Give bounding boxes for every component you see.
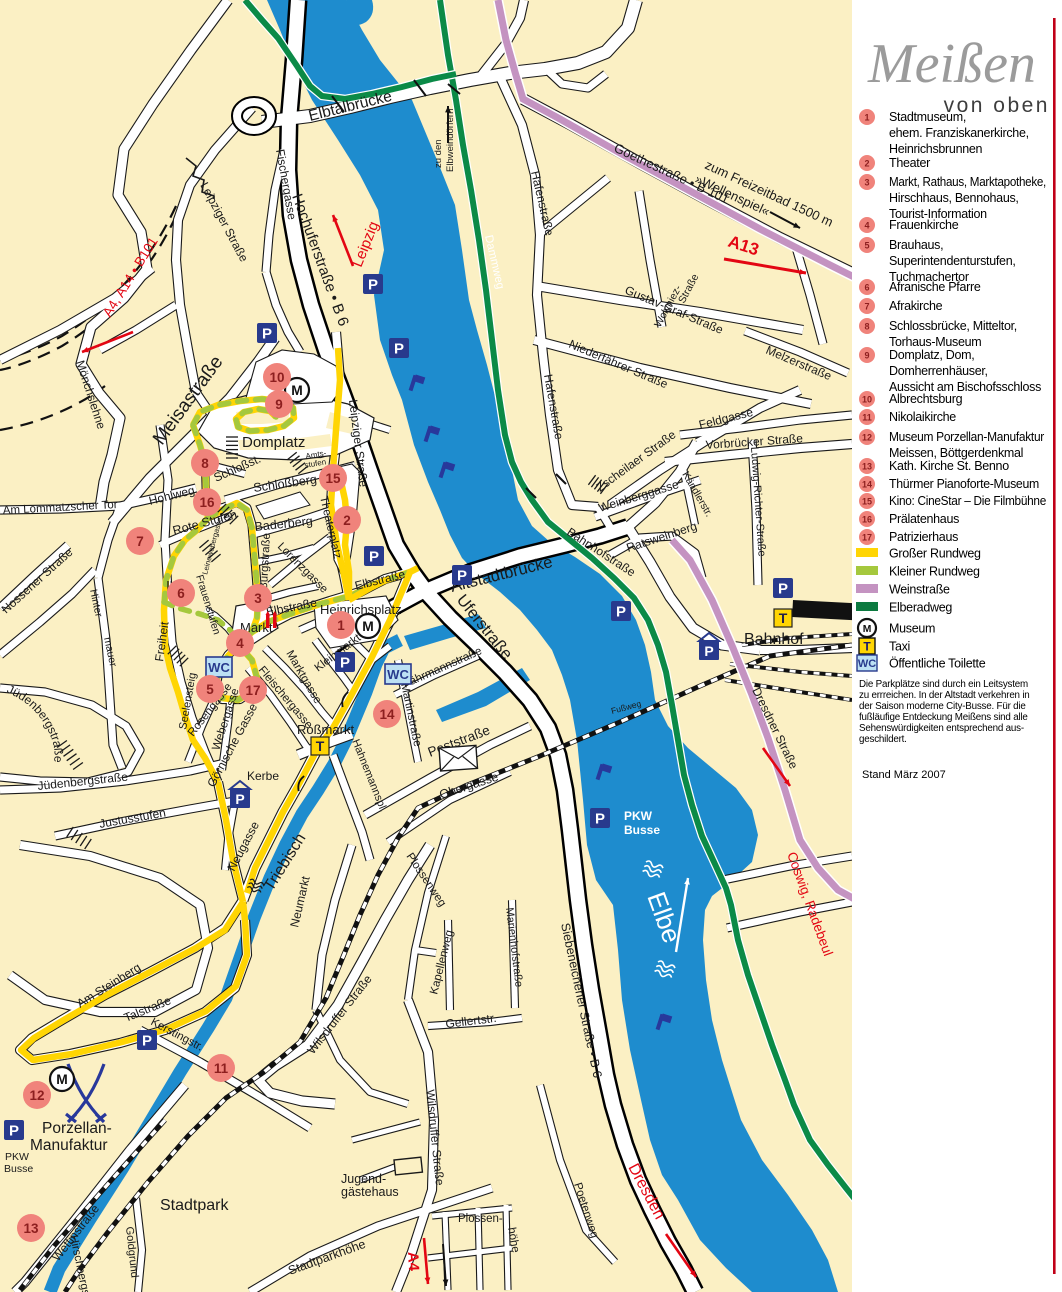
svg-text:P: P xyxy=(340,655,350,672)
svg-text:der Saison moderne City-Busse.: der Saison moderne City-Busse. Für die xyxy=(859,701,1026,712)
svg-text:5: 5 xyxy=(206,682,214,697)
svg-text:fußläufige Entdeckung Meißens: fußläufige Entdeckung Meißens sind alle xyxy=(859,712,1028,723)
svg-text:M: M xyxy=(291,383,303,398)
svg-text:8: 8 xyxy=(864,321,869,331)
svg-text:8: 8 xyxy=(201,456,209,471)
svg-text:11: 11 xyxy=(214,1061,229,1076)
svg-text:P: P xyxy=(616,604,626,621)
svg-text:Frauenkirche: Frauenkirche xyxy=(889,218,959,232)
svg-text:Roßmarkt: Roßmarkt xyxy=(297,722,354,737)
svg-text:Brauhaus,: Brauhaus, xyxy=(889,238,943,252)
svg-text:17: 17 xyxy=(862,532,872,542)
svg-text:Elberadweg: Elberadweg xyxy=(889,601,952,615)
svg-text:Thürmer Pianoforte-Museum: Thürmer Pianoforte-Museum xyxy=(889,477,1039,491)
svg-text:Großer Rundweg: Großer Rundweg xyxy=(889,547,981,561)
svg-text:Sehenswürdigkeiten entsprechen: Sehenswürdigkeiten entsprechend aus- xyxy=(859,723,1024,734)
svg-text:14: 14 xyxy=(379,707,395,722)
svg-text:6: 6 xyxy=(177,586,185,601)
svg-text:Kino: CineStar – Die Filmbühne: Kino: CineStar – Die Filmbühne xyxy=(889,494,1046,508)
svg-text:T: T xyxy=(316,738,325,754)
svg-text:P: P xyxy=(142,1033,152,1050)
svg-text:Taxi: Taxi xyxy=(889,640,910,654)
svg-text:7: 7 xyxy=(864,301,869,311)
svg-text:2: 2 xyxy=(864,158,869,168)
svg-text:1: 1 xyxy=(864,112,869,122)
svg-text:Hirschhaus, Bennohaus,: Hirschhaus, Bennohaus, xyxy=(889,191,1019,205)
svg-text:Stand März 2007: Stand März 2007 xyxy=(862,769,946,781)
svg-text:P: P xyxy=(368,277,378,294)
svg-text:6: 6 xyxy=(864,282,869,292)
svg-text:12: 12 xyxy=(29,1088,44,1103)
svg-text:zu den: zu den xyxy=(433,139,444,168)
svg-text:Domherrenhäuser,: Domherrenhäuser, xyxy=(889,364,988,378)
svg-text:Kerbe: Kerbe xyxy=(247,769,279,783)
svg-text:P: P xyxy=(369,549,379,566)
svg-text:16: 16 xyxy=(199,495,215,510)
svg-text:WC: WC xyxy=(208,660,230,675)
svg-text:Die Parkplätze sind durch ein: Die Parkplätze sind durch ein Leitsystem xyxy=(859,679,1028,690)
svg-text:15: 15 xyxy=(862,496,872,506)
svg-text:PKW: PKW xyxy=(624,809,653,823)
svg-text:Museum: Museum xyxy=(889,622,935,636)
svg-text:WC: WC xyxy=(858,658,876,670)
svg-text:Kath. Kirche St. Benno: Kath. Kirche St. Benno xyxy=(889,459,1009,473)
svg-text:2: 2 xyxy=(343,513,351,528)
svg-text:gästehaus: gästehaus xyxy=(341,1185,399,1199)
svg-text:P: P xyxy=(778,581,788,598)
svg-text:11: 11 xyxy=(862,412,872,422)
svg-text:Meißen: Meißen xyxy=(867,33,1036,95)
svg-text:10: 10 xyxy=(862,394,872,404)
svg-text:Bahnhof: Bahnhof xyxy=(744,631,804,648)
svg-text:7: 7 xyxy=(136,534,144,549)
svg-text:ehem. Franziskanerkirche,: ehem. Franziskanerkirche, xyxy=(889,126,1029,140)
svg-text:Afrakirche: Afrakirche xyxy=(889,299,943,313)
svg-text:Schlossbrücke, Mitteltor,: Schlossbrücke, Mitteltor, xyxy=(889,319,1017,333)
svg-text:T: T xyxy=(863,640,871,654)
svg-text:9: 9 xyxy=(275,397,283,412)
svg-text:Stadtmuseum,: Stadtmuseum, xyxy=(889,110,966,124)
svg-text:14: 14 xyxy=(862,479,872,489)
svg-text:15: 15 xyxy=(325,471,341,486)
svg-text:1: 1 xyxy=(337,618,345,633)
svg-text:PKW: PKW xyxy=(5,1151,29,1163)
svg-text:16: 16 xyxy=(862,514,872,524)
svg-text:Domplatz: Domplatz xyxy=(242,434,305,451)
svg-text:Elbweindörfern: Elbweindörfern xyxy=(445,109,456,172)
svg-text:12: 12 xyxy=(862,432,872,442)
svg-text:P: P xyxy=(235,791,244,807)
svg-text:Prälatenhaus: Prälatenhaus xyxy=(889,512,959,526)
svg-text:Jugend-: Jugend- xyxy=(341,1172,386,1186)
svg-text:Museum Porzellan-Manufaktur: Museum Porzellan-Manufaktur xyxy=(889,430,1044,444)
svg-text:Albrechtsburg: Albrechtsburg xyxy=(889,392,963,406)
svg-text:3: 3 xyxy=(254,591,262,606)
svg-text:Afranische Pfarre: Afranische Pfarre xyxy=(889,280,981,294)
svg-text:Plossen-: Plossen- xyxy=(458,1213,503,1225)
svg-text:13: 13 xyxy=(862,461,872,471)
svg-text:T: T xyxy=(779,610,788,626)
svg-text:Stadtpark: Stadtpark xyxy=(160,1197,229,1214)
svg-text:Nikolaikirche: Nikolaikirche xyxy=(889,410,956,424)
svg-text:13: 13 xyxy=(23,1221,39,1236)
svg-text:Patrizierhaus: Patrizierhaus xyxy=(889,530,958,544)
svg-text:Busse: Busse xyxy=(624,823,660,837)
svg-text:P: P xyxy=(394,341,404,358)
svg-text:geschildert.: geschildert. xyxy=(859,734,907,745)
svg-text:Theater: Theater xyxy=(889,156,930,170)
svg-text:M: M xyxy=(863,624,872,635)
svg-text:P: P xyxy=(704,643,713,659)
svg-text:Superintendenturstufen,: Superintendenturstufen, xyxy=(889,254,1016,268)
svg-text:Weinstraße: Weinstraße xyxy=(889,583,950,597)
svg-text:Kleiner Rundweg: Kleiner Rundweg xyxy=(889,565,980,579)
svg-text:Meissen, Böttgerdenkmal: Meissen, Böttgerdenkmal xyxy=(889,446,1023,460)
svg-text:Öffentliche Toilette: Öffentliche Toilette xyxy=(889,657,986,671)
svg-text:10: 10 xyxy=(269,370,284,385)
svg-text:M: M xyxy=(362,619,374,634)
svg-text:Porzellan-: Porzellan- xyxy=(42,1120,112,1137)
svg-text:zu errreichen. In der Altstadt: zu errreichen. In der Altstadt verkehren… xyxy=(859,690,1030,701)
svg-text:5: 5 xyxy=(864,240,869,250)
svg-text:P: P xyxy=(262,326,272,343)
svg-text:P: P xyxy=(595,811,605,828)
svg-text:P: P xyxy=(9,1123,19,1140)
svg-text:Busse: Busse xyxy=(4,1163,33,1175)
svg-text:Markt, Rathaus, Marktapotheke,: Markt, Rathaus, Marktapotheke, xyxy=(889,175,1046,189)
svg-text:3: 3 xyxy=(864,177,869,187)
svg-text:Heinrichsbrunnen: Heinrichsbrunnen xyxy=(889,142,983,156)
svg-text:P: P xyxy=(457,568,467,585)
svg-text:Domplatz, Dom,: Domplatz, Dom, xyxy=(889,348,974,362)
svg-text:Manufaktur: Manufaktur xyxy=(30,1137,108,1154)
svg-text:M: M xyxy=(56,1072,68,1087)
svg-text:9: 9 xyxy=(864,350,869,360)
svg-text:Torhaus-Museum: Torhaus-Museum xyxy=(889,335,981,349)
svg-text:17: 17 xyxy=(245,683,260,698)
svg-text:WC: WC xyxy=(387,667,409,682)
svg-text:4: 4 xyxy=(236,636,244,651)
svg-text:A4: A4 xyxy=(404,1251,422,1272)
svg-text:4: 4 xyxy=(864,220,869,230)
